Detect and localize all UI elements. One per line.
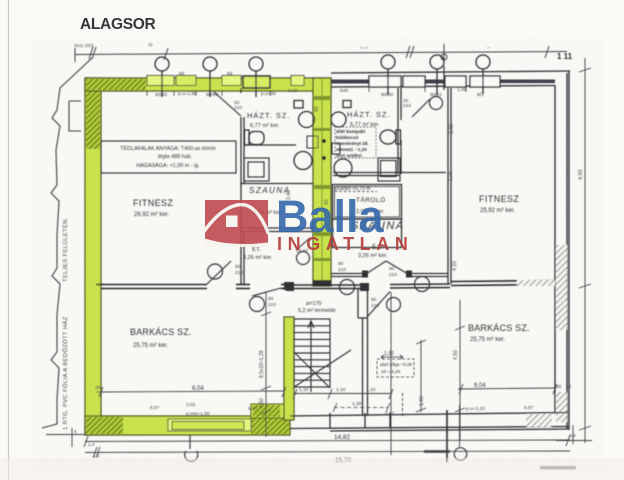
svg-text:ALAGSOR: ALAGSOR — [80, 16, 156, 33]
svg-text:INGATLAN: INGATLAN — [277, 234, 413, 254]
